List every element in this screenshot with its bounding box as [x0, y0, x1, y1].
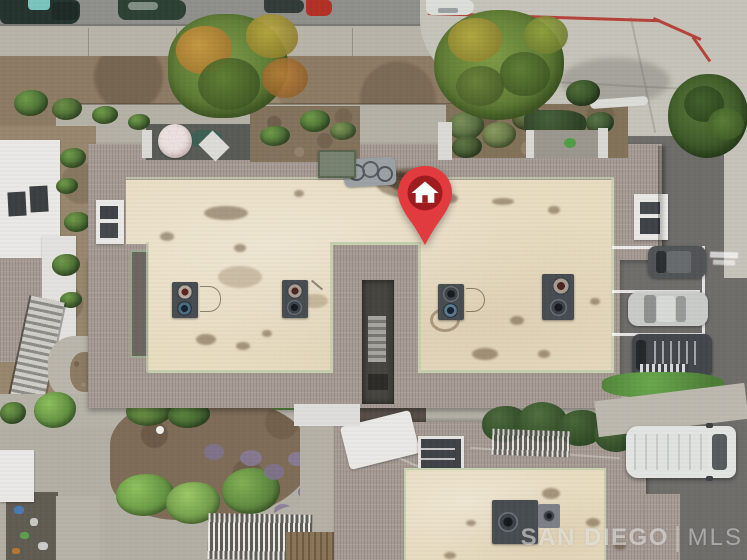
tree-canopy — [708, 108, 744, 140]
hvac-unit — [172, 282, 198, 318]
roof-trim — [611, 178, 614, 373]
watermark-suffix: MLS — [688, 524, 743, 552]
utility-box — [318, 150, 356, 178]
white-roof — [0, 450, 34, 502]
roof-trim — [420, 370, 612, 373]
sidewalk-joint — [88, 28, 89, 58]
parked-car — [648, 246, 706, 278]
car-windshield — [644, 295, 656, 323]
roof-stain — [472, 348, 498, 360]
pavement-marking — [710, 252, 738, 259]
roof-stain — [444, 552, 456, 559]
purple-plant — [264, 464, 284, 480]
tree-canopy — [500, 52, 550, 96]
roof-stain — [548, 206, 560, 214]
pavement-marking — [713, 260, 735, 266]
parked-van — [626, 426, 736, 478]
patio-item — [14, 506, 24, 514]
patio-item — [30, 518, 38, 526]
roof-stain — [542, 488, 560, 499]
van-windshield — [712, 434, 727, 470]
roof-stain — [466, 520, 476, 526]
car-roof — [667, 251, 691, 273]
hvac-fan — [287, 283, 303, 299]
balcony-wall — [438, 122, 452, 160]
van-roof — [634, 434, 708, 470]
car-hood — [52, 2, 78, 20]
sidewalk-joint — [352, 28, 353, 58]
bicycle-wheel — [377, 166, 393, 182]
roof-stain — [538, 350, 550, 358]
hvac-fan — [543, 510, 555, 522]
patio-umbrella — [158, 124, 192, 158]
tree-canopy — [262, 58, 308, 98]
patio-item — [20, 532, 29, 539]
light-fixture — [156, 426, 164, 434]
hvac-fan — [177, 301, 192, 316]
roof-trim — [148, 370, 332, 373]
utility-unit — [100, 223, 118, 238]
building-shadow — [658, 146, 666, 258]
roof-trim — [146, 242, 149, 372]
roof-opening — [7, 192, 26, 217]
stairs — [368, 316, 386, 362]
suv-roof-rack — [648, 341, 698, 365]
roof-stain — [196, 334, 216, 345]
aerial-photo: SAN DIEGO | MLS — [0, 0, 747, 560]
parked-car — [628, 292, 708, 326]
roof-stain — [218, 266, 262, 288]
hvac-fan — [443, 286, 459, 302]
skylight-mullion — [421, 448, 455, 450]
roof-stain — [510, 316, 524, 325]
watermark: SAN DIEGO | MLS — [521, 522, 743, 554]
hvac-fan — [287, 300, 302, 315]
parked-car — [118, 0, 186, 20]
hvac-fan — [177, 284, 193, 300]
pin-shape — [398, 166, 452, 246]
tree-canopy — [198, 58, 260, 110]
roof-stain — [160, 232, 174, 241]
roof-stain — [590, 298, 600, 305]
hvac-fan — [498, 512, 518, 532]
patio-item — [12, 548, 20, 554]
car-windshield — [28, 0, 50, 10]
purple-plant — [240, 450, 262, 466]
utility-unit — [100, 206, 118, 219]
van-mirror — [706, 476, 713, 481]
fence — [492, 429, 571, 458]
car-windshield — [438, 8, 458, 13]
hvac-fan — [443, 303, 458, 318]
roof-trim — [330, 244, 333, 373]
white-roof — [294, 404, 360, 426]
location-pin — [398, 166, 452, 246]
path — [56, 496, 100, 560]
utility-unit — [640, 202, 660, 214]
hvac-unit — [282, 280, 308, 318]
roof-trim — [418, 244, 421, 373]
purple-plant — [204, 444, 224, 460]
car-windshield — [656, 251, 666, 273]
hvac-unit — [438, 284, 464, 320]
balcony-wall — [142, 130, 152, 158]
patio-plant — [564, 138, 576, 148]
hvac-fan — [552, 277, 570, 295]
skylight-mullion — [421, 458, 455, 460]
hvac-piping — [200, 286, 221, 312]
car-roof — [128, 2, 158, 10]
roof-stain — [236, 342, 250, 350]
van-mirror — [706, 423, 713, 428]
hvac-fan — [550, 299, 567, 316]
watermark-divider: | — [669, 521, 688, 553]
parked-car — [264, 0, 304, 13]
parked-car — [306, 0, 332, 16]
utility-unit — [640, 218, 660, 234]
tree-canopy — [246, 14, 298, 58]
roof-opening — [29, 186, 48, 213]
stair-landing — [368, 374, 388, 390]
watermark-brand: SAN DIEGO — [521, 524, 669, 552]
balcony-wall — [598, 128, 608, 158]
hvac-unit — [542, 274, 574, 320]
roof-stain — [492, 198, 514, 205]
parked-car — [426, 0, 474, 15]
balcony-wall — [526, 130, 534, 158]
tree-canopy — [456, 66, 504, 106]
utility-platform — [96, 200, 124, 244]
roof-stain — [204, 206, 248, 220]
tree-canopy — [524, 16, 568, 54]
parked-car — [0, 0, 80, 24]
roof-stain — [234, 244, 246, 252]
patio-item — [38, 542, 48, 550]
pergola — [286, 532, 340, 560]
car-windshield — [676, 296, 686, 322]
car-roof — [657, 296, 675, 322]
roof-stain — [262, 330, 272, 337]
roof-stain — [294, 190, 304, 197]
